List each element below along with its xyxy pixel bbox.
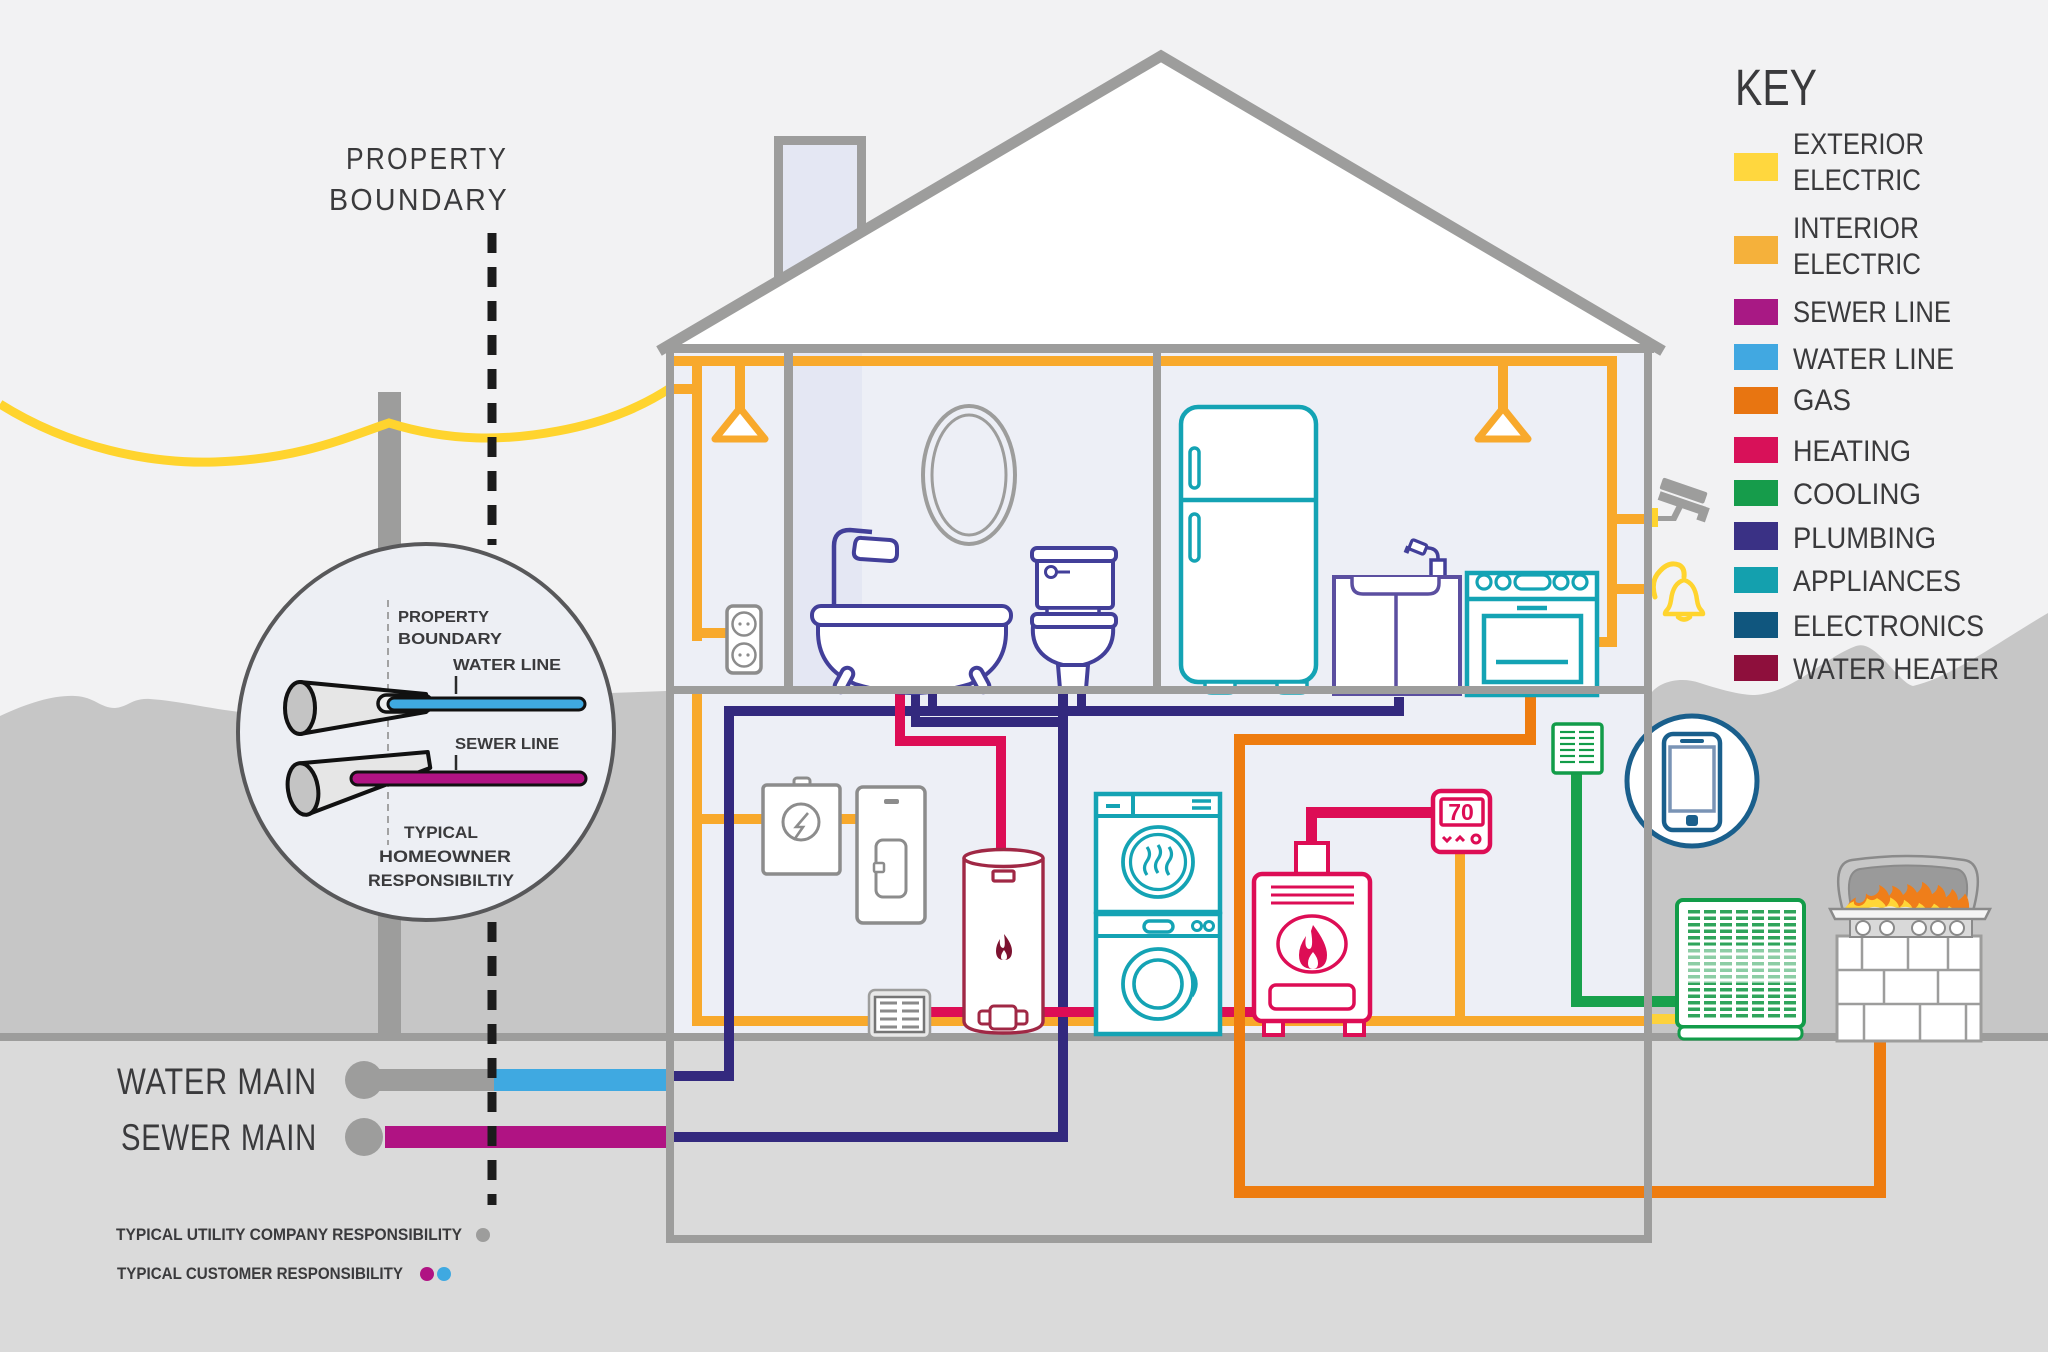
svg-text:TYPICAL: TYPICAL [404,823,478,842]
svg-text:ELECTRIC: ELECTRIC [1793,248,1921,281]
svg-text:SEWER LINE: SEWER LINE [455,736,559,753]
svg-text:WATER HEATER: WATER HEATER [1793,653,1999,686]
svg-text:SEWER LINE: SEWER LINE [1793,296,1951,329]
svg-text:PROPERTY: PROPERTY [398,609,489,626]
svg-text:APPLIANCES: APPLIANCES [1793,565,1961,598]
svg-text:RESPONSIBILTIY: RESPONSIBILTIY [368,871,515,890]
svg-text:70: 70 [1448,799,1474,825]
svg-text:TYPICAL UTILITY COMPANY RESPO: TYPICAL UTILITY COMPANY RESPONSIBILITY [116,1225,463,1244]
svg-text:WATER LINE: WATER LINE [1793,343,1954,376]
svg-text:WATER MAIN: WATER MAIN [117,1061,317,1102]
svg-text:BOUNDARY: BOUNDARY [329,182,509,217]
svg-text:COOLING: COOLING [1793,478,1921,511]
svg-text:TYPICAL CUSTOMER RESPONSIBILIT: TYPICAL CUSTOMER RESPONSIBILITY [117,1264,404,1283]
svg-text:ELECTRIC: ELECTRIC [1793,164,1921,197]
svg-text:PROPERTY: PROPERTY [346,141,508,176]
svg-text:HOMEOWNER: HOMEOWNER [379,847,511,866]
svg-text:KEY: KEY [1735,59,1817,116]
svg-text:EXTERIOR: EXTERIOR [1793,128,1924,161]
svg-text:PLUMBING: PLUMBING [1793,522,1936,555]
svg-text:ELECTRONICS: ELECTRONICS [1793,610,1984,643]
svg-text:HEATING: HEATING [1793,435,1911,468]
svg-text:SEWER MAIN: SEWER MAIN [121,1117,317,1158]
svg-text:WATER LINE: WATER LINE [453,657,561,674]
svg-text:GAS: GAS [1793,384,1851,417]
svg-text:INTERIOR: INTERIOR [1793,212,1919,245]
svg-text:BOUNDARY: BOUNDARY [398,631,502,648]
